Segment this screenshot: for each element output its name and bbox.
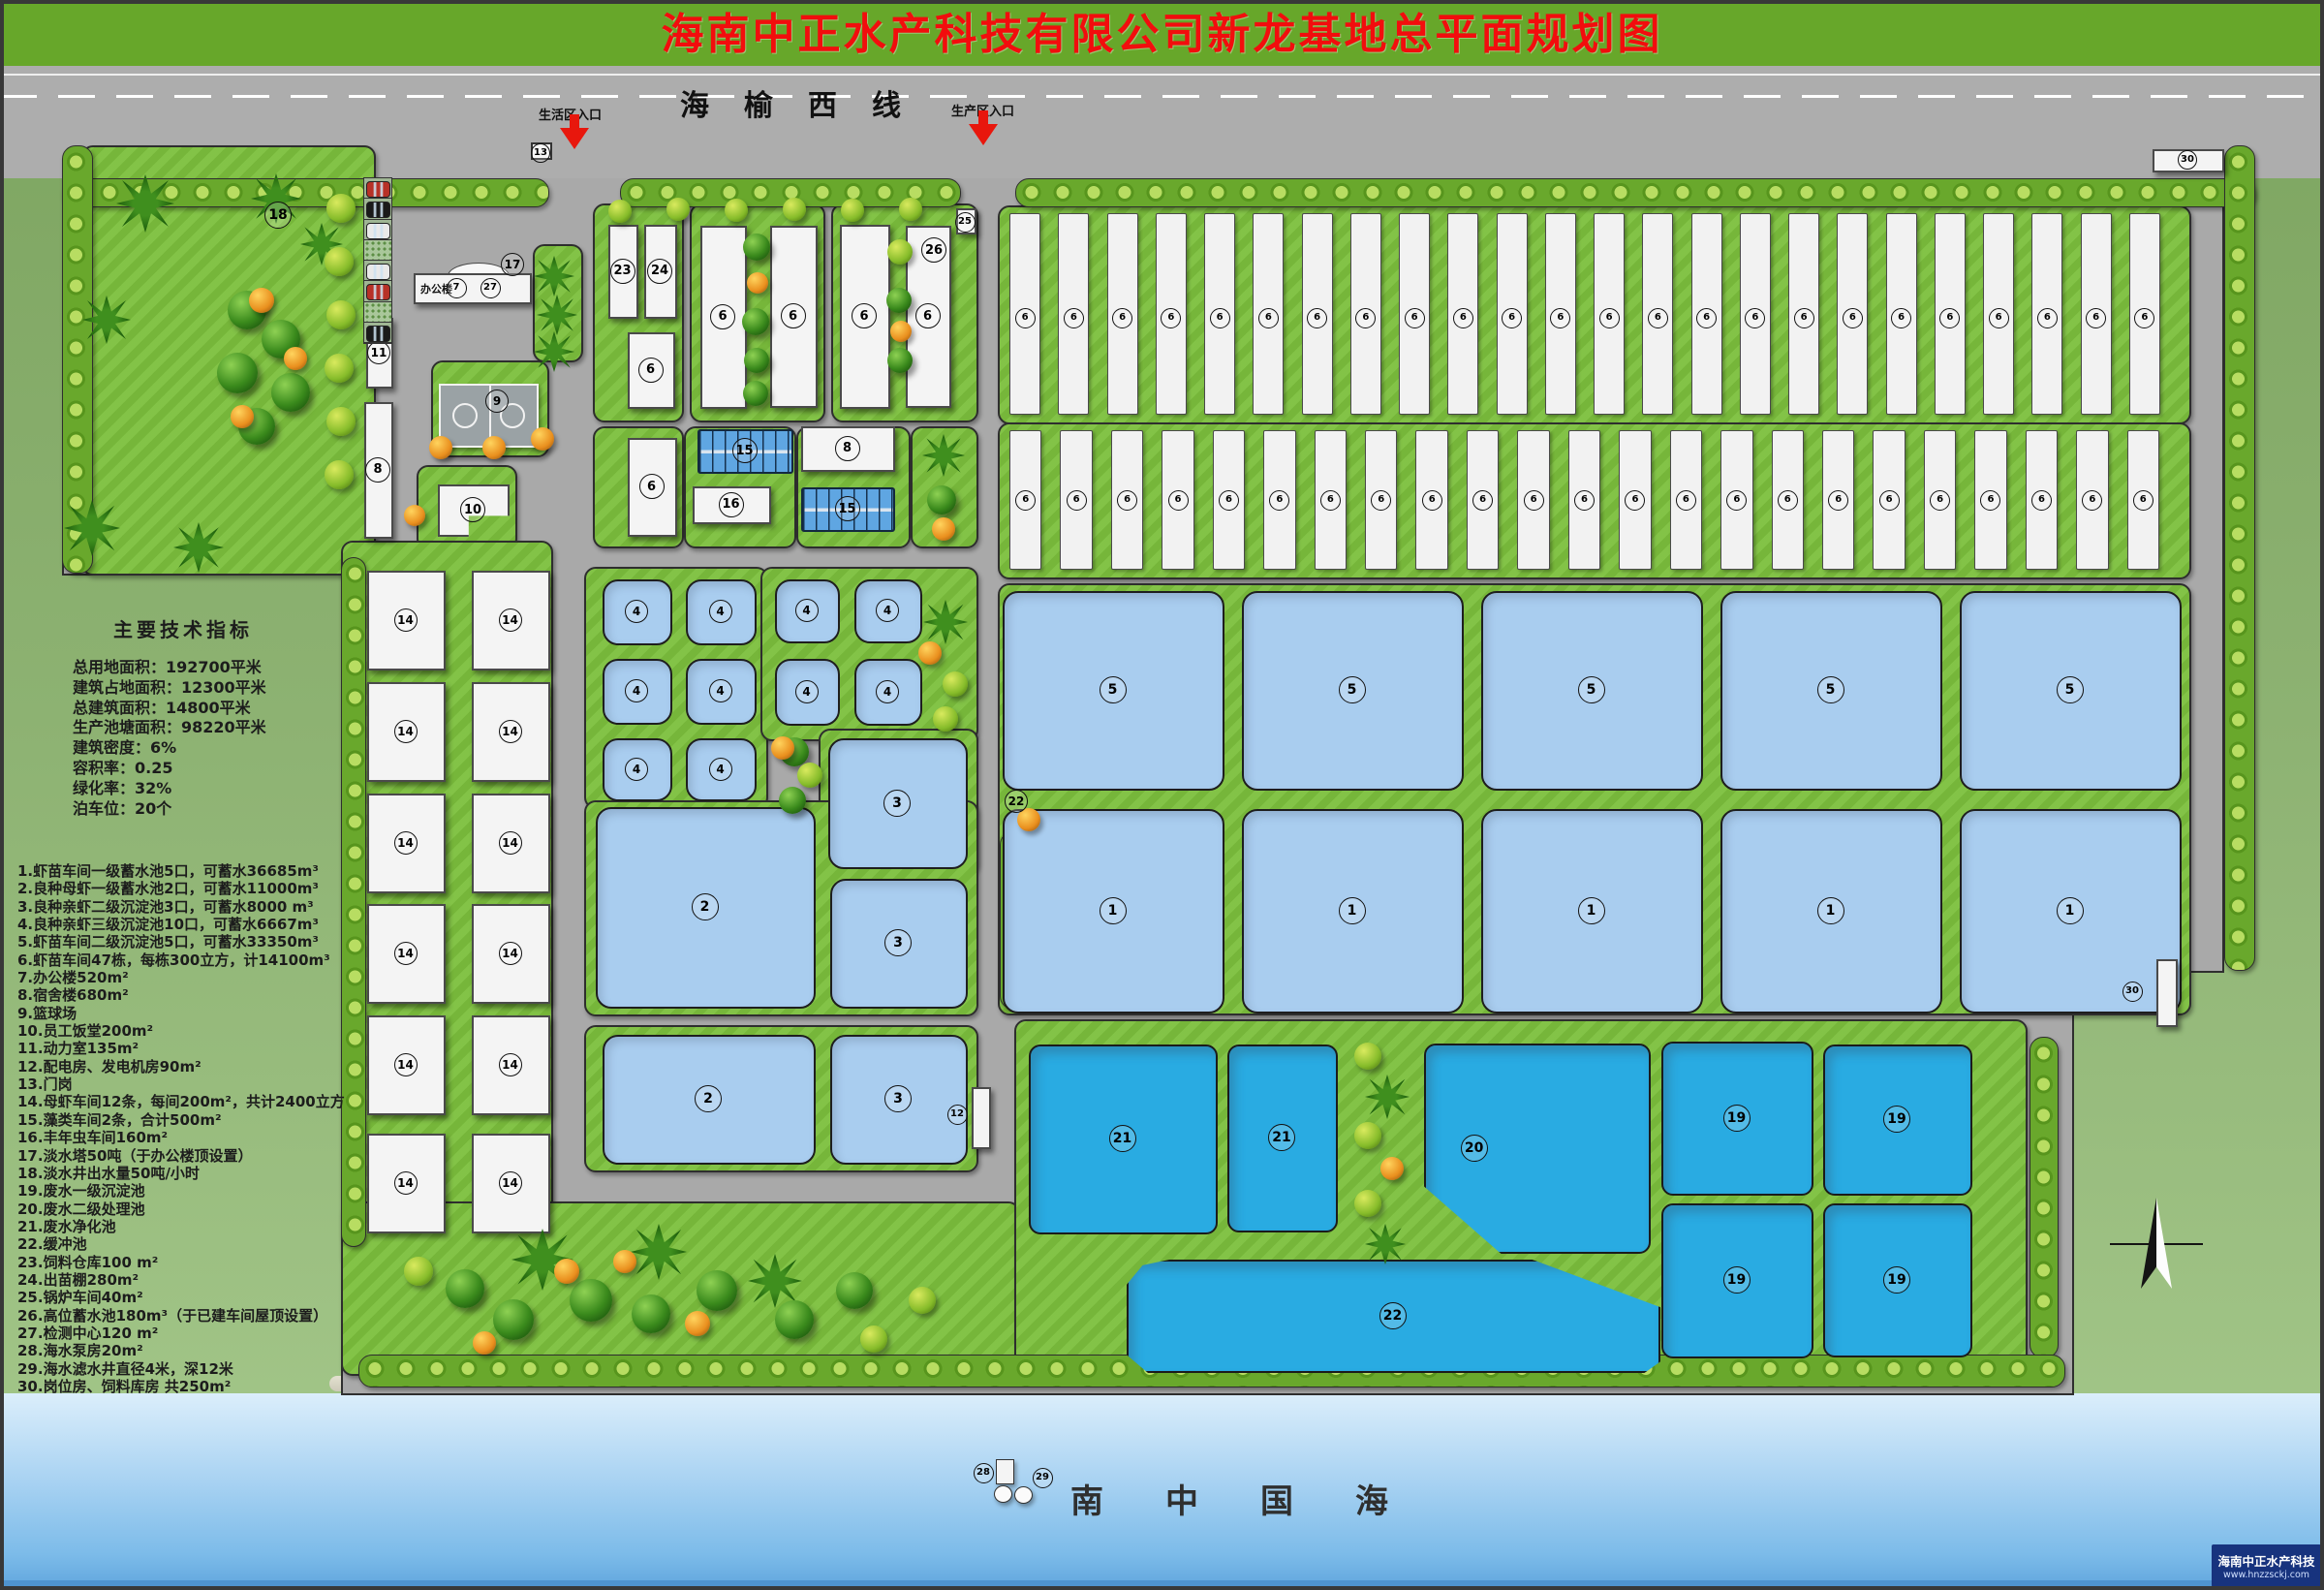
bush-icon xyxy=(887,239,913,265)
marker-29: 29 xyxy=(1033,1468,1053,1488)
bush-icon xyxy=(725,199,748,222)
indicators-list-item: 容积率：0.25 xyxy=(73,759,557,779)
bush-icon xyxy=(933,706,958,732)
legend-list-item: 9.篮球场 xyxy=(17,1005,521,1022)
bush-icon xyxy=(666,198,690,221)
legend-list-item: 26.高位蓄水池180m³（于已建车间屋顶设置） xyxy=(17,1307,521,1325)
legend-list-item: 29.海水滤水井直径4米，深12米 xyxy=(17,1360,521,1378)
legend-list-item: 20.废水二级处理池 xyxy=(17,1200,521,1218)
legend-list-item: 12.配电房、发电机房90m² xyxy=(17,1058,521,1076)
marker-7: 7 xyxy=(447,278,467,298)
car-icon xyxy=(366,284,390,300)
otree-icon xyxy=(890,321,912,342)
legend-list-item: 24.出苗棚280m² xyxy=(17,1271,521,1289)
technical-indicators: 主要技术指标 总用地面积：192700平米建筑占地面积：12300平米总建筑面积… xyxy=(73,614,557,819)
bush-icon xyxy=(326,194,356,223)
indicators-list-item: 建筑密度：6% xyxy=(73,738,557,759)
legend-list-item: 8.宿舍楼680m² xyxy=(17,986,521,1004)
legend-list-item: 6.虾苗车间47栋，每栋300立方，计14100m³ xyxy=(17,951,521,969)
tree-icon xyxy=(271,373,310,412)
bush-icon xyxy=(608,200,632,223)
parking-stall xyxy=(364,199,391,219)
otree-icon xyxy=(249,288,274,313)
company-logo: 海南中正水产科技 www.hnzzsckj.com xyxy=(2212,1544,2321,1587)
marker-25: 25 xyxy=(955,212,976,233)
car-icon xyxy=(366,223,390,239)
legend-list-item: 25.锅炉车间40m² xyxy=(17,1289,521,1306)
palm-icon xyxy=(922,434,965,477)
otree-icon xyxy=(429,436,452,459)
parking-lot xyxy=(363,177,392,344)
parking-stall xyxy=(364,302,391,323)
palm-icon xyxy=(82,296,131,344)
indicators-list-item: 绿化率：32% xyxy=(73,779,557,799)
bush-icon xyxy=(326,300,356,329)
bush-icon xyxy=(325,354,354,383)
bush-icon xyxy=(325,460,354,489)
tree-icon xyxy=(744,348,769,373)
tree-icon xyxy=(887,348,913,373)
legend-list: 1.虾苗车间一级蓄水池5口，可蓄水36685m³2.良种母虾一级蓄水池2口，可蓄… xyxy=(17,862,521,1395)
tree-icon xyxy=(697,1270,737,1311)
legend-list-item: 15.藻类车间2条，合计500m² xyxy=(17,1111,521,1129)
legend-list-item: 5.虾苗车间二级沉淀池5口，可蓄水33350m³ xyxy=(17,933,521,951)
indicators-list-item: 泊车位：20个 xyxy=(73,799,557,820)
tree-icon xyxy=(886,288,912,313)
indicators-list-item: 建筑占地面积：12300平米 xyxy=(73,678,557,699)
otree-icon xyxy=(747,272,768,294)
otree-icon xyxy=(231,405,254,428)
bush-icon xyxy=(797,763,822,788)
parking-stall xyxy=(364,240,391,261)
otree-icon xyxy=(918,641,942,665)
bush-icon xyxy=(1354,1043,1381,1070)
palm-icon xyxy=(534,256,574,296)
legend-list-item: 1.虾苗车间一级蓄水池5口，可蓄水36685m³ xyxy=(17,862,521,880)
parking-stall xyxy=(364,178,391,199)
legend-list-item: 2.良种母虾一级蓄水池2口，可蓄水11000m³ xyxy=(17,880,521,897)
tree-icon xyxy=(836,1272,873,1309)
indicators-list-item: 总用地面积：192700平米 xyxy=(73,658,557,678)
legend-list-item: 4.良种亲虾三级沉淀池10口，可蓄水6667m³ xyxy=(17,916,521,933)
palm-icon xyxy=(534,331,574,372)
tree-icon xyxy=(927,485,956,514)
tree-icon xyxy=(570,1279,612,1322)
otree-icon xyxy=(482,436,506,459)
car-icon xyxy=(366,202,390,218)
parking-stall xyxy=(364,281,391,301)
palm-icon xyxy=(1365,1224,1406,1264)
parking-stall xyxy=(364,323,391,343)
legend-list-item: 11.动力室135m² xyxy=(17,1040,521,1057)
bush-icon xyxy=(783,198,806,221)
parking-stall xyxy=(364,220,391,240)
indicators-list-item: 总建筑面积：14800平米 xyxy=(73,699,557,719)
legend-list-item: 16.丰年虫车间160m² xyxy=(17,1129,521,1146)
tree-icon xyxy=(632,1294,670,1333)
bush-icon xyxy=(325,247,354,276)
tree-icon xyxy=(217,353,258,393)
otree-icon xyxy=(1380,1157,1404,1180)
tree-icon xyxy=(743,381,768,406)
indicators-title: 主要技术指标 xyxy=(113,614,557,642)
marker-17: 17 xyxy=(501,253,524,276)
bush-icon xyxy=(1354,1190,1381,1217)
marker-30: 30 xyxy=(2123,982,2143,1002)
marker-9: 9 xyxy=(485,390,509,413)
marker-18: 18 xyxy=(264,202,292,229)
legend-list-item: 21.废水净化池 xyxy=(17,1218,521,1235)
otree-icon xyxy=(771,736,794,760)
bush-icon xyxy=(909,1287,936,1314)
palm-icon xyxy=(1365,1075,1410,1119)
car-icon xyxy=(366,326,390,342)
legend-list-item: 23.饲料仓库100 m² xyxy=(17,1254,521,1271)
legend-list-item: 27.检测中心120 m² xyxy=(17,1325,521,1342)
tree-icon xyxy=(779,787,806,814)
otree-icon xyxy=(531,427,554,451)
marker-12: 12 xyxy=(947,1105,968,1125)
parking-stall xyxy=(364,261,391,281)
indicators-list: 总用地面积：192700平米建筑占地面积：12300平米总建筑面积：14800平… xyxy=(73,658,557,819)
otree-icon xyxy=(932,517,955,541)
otree-icon xyxy=(613,1250,636,1273)
bush-icon xyxy=(943,671,968,697)
tree-icon xyxy=(742,308,769,335)
logo-company: 海南中正水产科技 xyxy=(2217,1551,2314,1570)
legend-list-item: 7.办公楼520m² xyxy=(17,969,521,986)
marker-28: 28 xyxy=(974,1463,994,1483)
legend-list-item: 18.淡水井出水量50吨/小时 xyxy=(17,1165,521,1182)
legend-list-item: 14.母虾车间12条，每间200m²，共计2400立方 xyxy=(17,1093,521,1110)
otree-icon xyxy=(284,347,307,370)
page-title: 海南中正水产科技有限公司新龙基地总平面规划图 xyxy=(662,4,1663,66)
marker-26: 26 xyxy=(921,237,946,263)
legend-list-item: 22.缓冲池 xyxy=(17,1235,521,1253)
logo-website: www.hnzzsckj.com xyxy=(2223,1570,2309,1580)
palm-icon xyxy=(537,295,577,335)
marker-27: 27 xyxy=(480,278,501,298)
site-plan: 南中国海 海榆西线 生活区入口 生产区入口 444444444433322555… xyxy=(0,0,2324,1590)
bush-icon xyxy=(841,199,864,222)
indicators-list-item: 生产池塘面积：98220平米 xyxy=(73,718,557,738)
legend-list-item: 28.海水泵房20m² xyxy=(17,1342,521,1359)
legend-list-item: 3.良种亲虾二级沉淀池3口，可蓄水8000 m³ xyxy=(17,898,521,916)
legend-list-item: 30.岗位房、饲料库房 共250m² xyxy=(17,1378,521,1395)
bush-icon xyxy=(1354,1122,1381,1149)
bush-icon xyxy=(899,198,922,221)
legend-list-item: 17.淡水塔50吨（于办公楼顶设置） xyxy=(17,1147,521,1165)
tree-icon xyxy=(743,234,770,261)
legend-list-item: 13.门岗 xyxy=(17,1076,521,1093)
marker-13: 13 xyxy=(531,143,550,163)
palm-icon xyxy=(631,1224,687,1280)
legend-list-item: 19.废水一级沉淀池 xyxy=(17,1182,521,1200)
palm-icon xyxy=(116,174,174,233)
bush-icon xyxy=(326,407,356,436)
palm-icon xyxy=(173,522,224,573)
legend-list-item: 10.员工饭堂200m² xyxy=(17,1022,521,1040)
otree-icon xyxy=(685,1311,710,1336)
tree-icon xyxy=(775,1300,814,1339)
bush-icon xyxy=(860,1325,887,1353)
car-icon xyxy=(366,181,390,198)
otree-icon xyxy=(554,1259,579,1284)
car-icon xyxy=(366,264,390,280)
palm-icon xyxy=(923,600,968,644)
palm-icon xyxy=(64,500,120,556)
title-bar: 海南中正水产科技有限公司新龙基地总平面规划图 xyxy=(4,4,2320,66)
marker-22: 22 xyxy=(1005,790,1028,813)
otree-icon xyxy=(404,505,425,526)
